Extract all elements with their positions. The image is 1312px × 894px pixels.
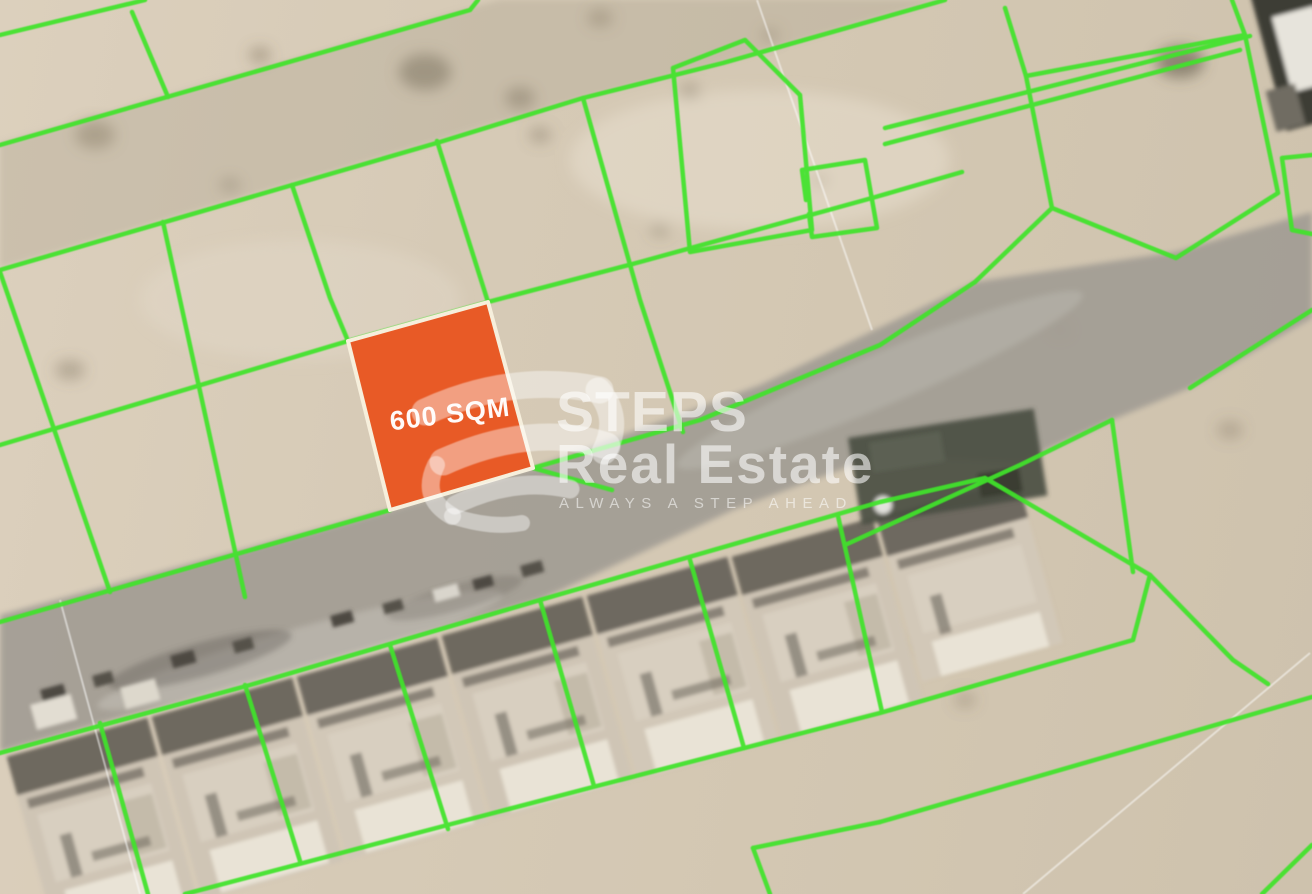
map-screenshot: 600 SQM STEPS Real Estate ALWAYS A STEP … bbox=[0, 0, 1312, 894]
boundary-line bbox=[132, 12, 168, 97]
boundary-line bbox=[0, 0, 145, 35]
boundary-line bbox=[753, 848, 770, 894]
boundary-line bbox=[885, 50, 1240, 144]
boundary-line bbox=[0, 272, 110, 592]
boundary-line bbox=[1150, 575, 1268, 684]
boundary-line bbox=[1112, 420, 1133, 572]
boundary-line bbox=[885, 36, 1250, 128]
boundary-line bbox=[753, 822, 880, 848]
satellite-basemap bbox=[0, 0, 1312, 894]
boundary-line bbox=[1262, 845, 1312, 894]
boundary-line bbox=[1005, 0, 1245, 76]
boundary-line bbox=[975, 208, 1052, 282]
boundary-line bbox=[880, 697, 1312, 822]
